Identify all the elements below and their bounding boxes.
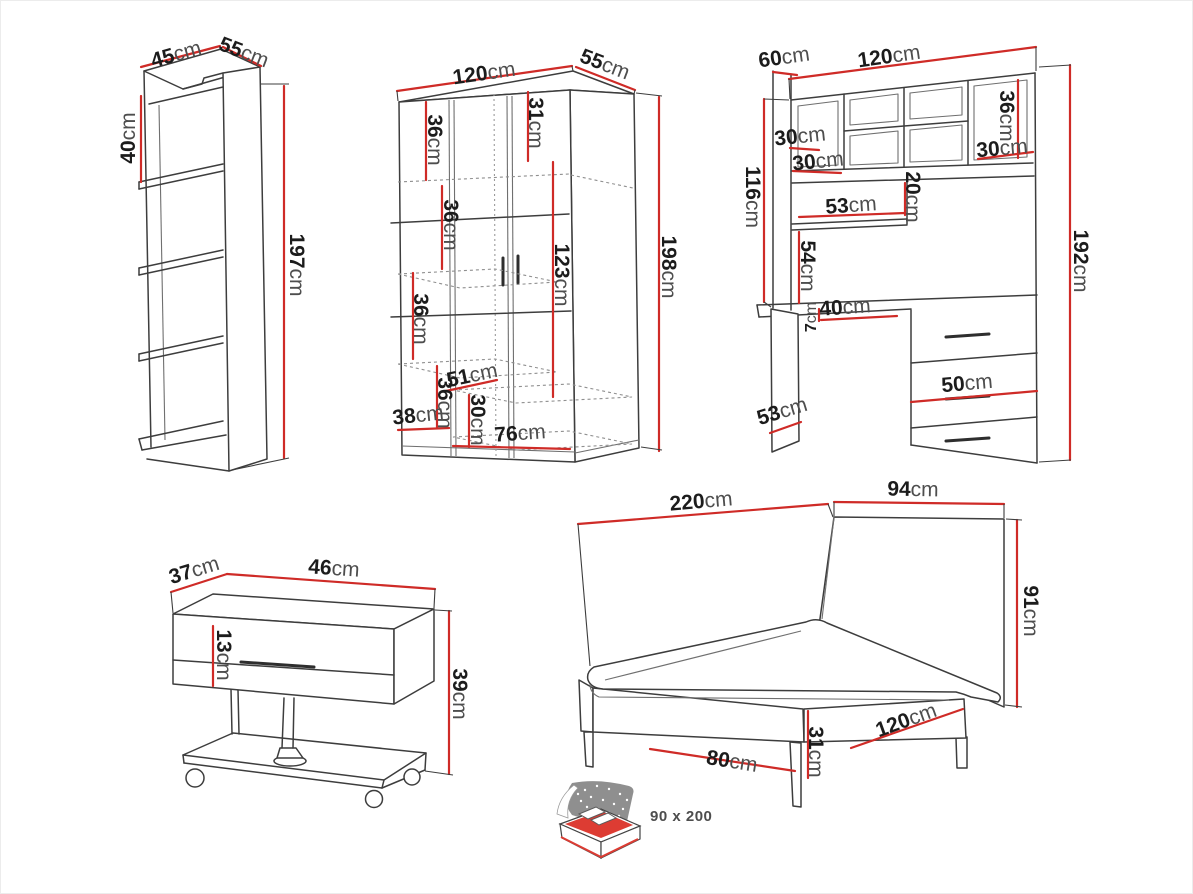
mattress-size-note: 90 x 200 (650, 808, 712, 825)
dim-desk-hutch-height: 116cm (742, 166, 765, 228)
dim-bed-side-width: 80cm (705, 746, 759, 777)
dim-wardrobe-hanging: 123cm (551, 243, 574, 306)
nightstand-drawing: 37cm 46cm 13cm 39cm (166, 551, 471, 807)
shelf-side-panel (223, 67, 267, 471)
dim-wardrobe-shelf3: 36cm (410, 293, 433, 344)
dim-wardrobe-shelf2: 36cm (440, 199, 463, 250)
dim-bed-length: 220cm (669, 487, 734, 515)
dim-desk-cubby-depth: 30cm (773, 122, 826, 150)
nightstand-base (183, 733, 426, 780)
dim-nightstand-height: 39cm (449, 668, 472, 719)
dim-bed-headboard-height: 91cm (1020, 585, 1043, 636)
caster-wheel (366, 791, 383, 808)
bed-frame-front (593, 688, 804, 742)
wardrobe-side-face (570, 90, 639, 462)
dim-desk-right-cubby: 30cm (975, 134, 1028, 161)
caster-wheel (186, 769, 204, 787)
dim-desk-depth: 60cm (757, 42, 811, 72)
dim-desk-cubby-height: 36cm (996, 90, 1019, 141)
dim-nightstand-width: 46cm (308, 555, 361, 582)
dim-wardrobe-height: 198cm (658, 235, 681, 298)
shelf-unit-drawing: 45cm 55cm 40cm 197cm (117, 32, 309, 471)
bed-leg (584, 732, 593, 767)
dim-wardrobe-top-section: 31cm (525, 97, 548, 148)
dim-shelf-cell-height: 40cm (117, 112, 140, 163)
bed-leg (956, 737, 967, 768)
dim-desk-open-height: 54cm (797, 240, 820, 291)
dim-wardrobe-drawer: 30cm (467, 394, 490, 445)
dim-bed-headboard-width: 94cm (887, 477, 939, 501)
dim-desk-height: 192cm (1070, 229, 1093, 292)
single-bed-icon: 90 x 200 (557, 781, 712, 858)
dim-wardrobe-bottom-depth: 76cm (494, 420, 547, 447)
nightstand-front-face (173, 614, 394, 704)
desk-drawing: 60cm 120cm 30cm 30cm 36cm 30cm 116cm 53c… (742, 40, 1093, 463)
dim-desk-width: 120cm (856, 40, 922, 72)
dim-nightstand-drawer: 13cm (213, 629, 236, 680)
desk-drawer-handle (946, 334, 989, 337)
bed-drawing: 220cm 94cm 91cm 31cm 120cm 80cm (578, 477, 1043, 807)
dim-desk-knee-space: 40cm (819, 294, 872, 321)
dim-desk-cubby-width: 30cm (791, 147, 844, 175)
dim-shelf-height: 197cm (286, 233, 309, 296)
dim-desk-shelf-width: 53cm (825, 192, 878, 219)
furniture-dimensions-diagram: 45cm 55cm 40cm 197cm (0, 0, 1193, 894)
dim-desk-top-thickness: 7cm (803, 302, 820, 332)
bed-outline (579, 517, 1004, 807)
dim-wardrobe-shelf1: 36cm (424, 114, 447, 165)
dim-nightstand-depth: 37cm (166, 551, 222, 588)
dim-bed-base-height: 31cm (805, 726, 828, 777)
desk-drawer-handle (946, 438, 989, 441)
dim-desk-shelf-height: 20cm (902, 171, 925, 222)
wardrobe-drawing: 120cm 55cm 36cm 31cm 36cm 36cm 123cm 51c… (391, 44, 681, 462)
diagram-svg: 45cm 55cm 40cm 197cm (1, 1, 1193, 894)
caster-wheel (404, 769, 420, 785)
bed-leg (790, 742, 801, 807)
dim-desk-drawer-width: 50cm (940, 369, 993, 396)
shelf-unit-outline (139, 49, 267, 471)
